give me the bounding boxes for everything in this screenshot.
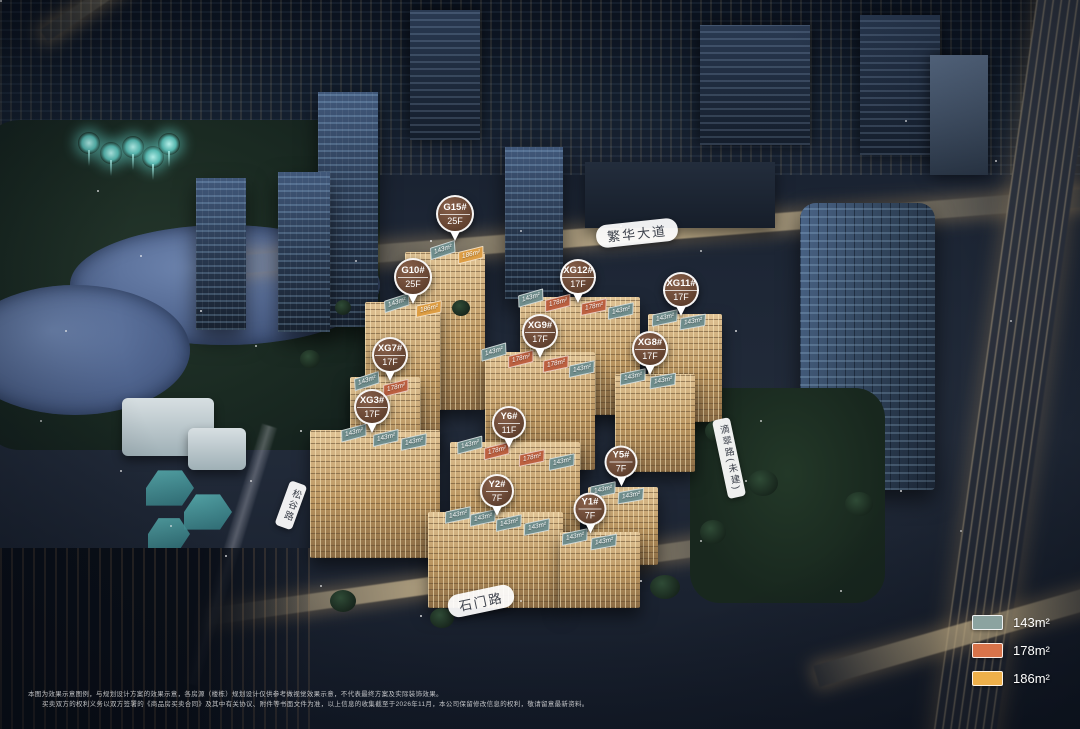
marker-building-id: XG3# bbox=[357, 395, 387, 408]
building-marker-xg7[interactable]: XG7#17F bbox=[372, 337, 408, 381]
legend-row-143m: 143m² bbox=[972, 615, 1050, 630]
area-tag-143: 143m² bbox=[401, 433, 427, 451]
marker-pointer bbox=[585, 524, 595, 534]
building-marker-xg3[interactable]: XG3#17F bbox=[354, 389, 390, 433]
marker-building-id: XG7# bbox=[375, 343, 405, 356]
building-marker-y1[interactable]: Y1#7F bbox=[574, 493, 607, 534]
building-marker-xg8[interactable]: XG8#17F bbox=[632, 331, 668, 375]
legend-swatch bbox=[972, 671, 1003, 686]
marker-pointer bbox=[408, 294, 418, 304]
legend-row-186m: 186m² bbox=[972, 671, 1050, 686]
area-tag-143: 143m² bbox=[618, 488, 645, 505]
marker-floor-count: 7F bbox=[616, 463, 627, 475]
marker-circle: G10#25F bbox=[394, 258, 432, 296]
marker-circle: XG7#17F bbox=[372, 337, 408, 373]
marker-pointer bbox=[676, 306, 686, 316]
disclaimer-text: 本图为效果示意图例，与规划设计方案的效果示意，各房源（楼栋）规划设计仅供参考做视… bbox=[28, 690, 589, 710]
disclaimer-line-2: 买卖双方的权利义务以双方签署的《商品房买卖合同》及其中有关协议、附件等书面文件为… bbox=[28, 700, 589, 710]
marker-floor-count: 17F bbox=[673, 291, 689, 303]
building-marker-y5[interactable]: Y5#7F bbox=[605, 446, 638, 487]
marker-pointer bbox=[367, 423, 377, 433]
area-tag-143: 143m² bbox=[496, 514, 522, 532]
area-tag-143: 143m² bbox=[608, 302, 634, 320]
marker-floor-count: 7F bbox=[492, 492, 503, 504]
building-marker-g10[interactable]: G10#25F bbox=[394, 258, 432, 304]
marker-circle: XG12#17F bbox=[560, 259, 596, 295]
marker-circle: Y2#7F bbox=[480, 474, 514, 508]
marker-pointer bbox=[504, 438, 514, 448]
marker-circle: XG11#17F bbox=[663, 272, 699, 308]
marker-building-id: G15# bbox=[440, 202, 469, 215]
road-label-2: 滴翠路(未建) bbox=[712, 417, 746, 499]
road-label-1: 石门路 bbox=[446, 583, 516, 619]
marker-building-id: XG8# bbox=[635, 337, 665, 350]
legend-label: 178m² bbox=[1013, 643, 1050, 658]
marker-pointer bbox=[535, 348, 545, 358]
building-marker-xg9[interactable]: XG9#17F bbox=[522, 314, 558, 358]
area-legend: 143m²178m²186m² bbox=[972, 615, 1050, 699]
road-label-3: 松谷路 bbox=[275, 480, 308, 530]
marker-floor-count: 7F bbox=[585, 510, 596, 522]
marker-floor-count: 25F bbox=[447, 215, 463, 227]
area-tag-143: 143m² bbox=[591, 534, 618, 551]
marker-floor-count: 17F bbox=[382, 356, 398, 368]
disclaimer-line-1: 本图为效果示意图例，与规划设计方案的效果示意，各房源（楼栋）规划设计仅供参考做视… bbox=[28, 690, 589, 700]
area-tag-143: 143m² bbox=[524, 518, 550, 536]
marker-building-id: G10# bbox=[398, 265, 427, 278]
marker-building-id: XG9# bbox=[525, 320, 555, 333]
marker-circle: Y1#7F bbox=[574, 493, 607, 526]
area-tag-178: 178m² bbox=[519, 449, 545, 467]
marker-building-id: Y5# bbox=[610, 450, 633, 463]
area-tag-143: 143m² bbox=[549, 453, 575, 471]
area-tag-186: 186m² bbox=[458, 246, 484, 265]
building-marker-y6[interactable]: Y6#11F bbox=[492, 406, 526, 448]
marker-building-id: XG12# bbox=[560, 265, 596, 278]
area-tag-143: 143m² bbox=[457, 435, 483, 454]
marker-floor-count: 17F bbox=[570, 278, 586, 290]
area-tag-143: 143m² bbox=[430, 240, 456, 261]
marker-floor-count: 17F bbox=[642, 350, 658, 362]
marker-pointer bbox=[492, 506, 502, 516]
building-marker-xg12[interactable]: XG12#17F bbox=[560, 259, 596, 303]
marker-circle: XG3#17F bbox=[354, 389, 390, 425]
marker-pointer bbox=[450, 231, 460, 241]
area-tag-143: 143m² bbox=[518, 288, 544, 308]
building-marker-g15[interactable]: G15#25F bbox=[436, 195, 474, 241]
marker-circle: Y5#7F bbox=[605, 446, 638, 479]
legend-label: 143m² bbox=[1013, 615, 1050, 630]
legend-label: 186m² bbox=[1013, 671, 1050, 686]
marker-circle: G15#25F bbox=[436, 195, 474, 233]
annotation-layer: 143m²186m²143m²186m²143m²178m²178m²143m²… bbox=[0, 0, 1080, 729]
marker-floor-count: 25F bbox=[405, 278, 421, 290]
marker-pointer bbox=[385, 371, 395, 381]
marker-building-id: XG11# bbox=[663, 278, 698, 291]
aerial-site-plan: 143m²186m²143m²186m²143m²178m²178m²143m²… bbox=[0, 0, 1080, 729]
marker-circle: XG9#17F bbox=[522, 314, 558, 350]
marker-building-id: Y2# bbox=[486, 479, 509, 492]
marker-pointer bbox=[573, 293, 583, 303]
building-marker-xg11[interactable]: XG11#17F bbox=[663, 272, 699, 316]
area-tag-143: 143m² bbox=[481, 342, 507, 362]
marker-pointer bbox=[645, 365, 655, 375]
marker-building-id: Y6# bbox=[498, 411, 521, 424]
marker-pointer bbox=[616, 477, 626, 487]
building-marker-y2[interactable]: Y2#7F bbox=[480, 474, 514, 516]
marker-floor-count: 11F bbox=[502, 424, 517, 436]
area-tag-143: 143m² bbox=[680, 314, 707, 331]
road-label-0: 繁华大道 bbox=[595, 217, 679, 248]
legend-swatch bbox=[972, 615, 1003, 630]
area-tag-143: 143m² bbox=[445, 506, 471, 524]
marker-circle: Y6#11F bbox=[492, 406, 526, 440]
marker-circle: XG8#17F bbox=[632, 331, 668, 367]
legend-swatch bbox=[972, 643, 1003, 658]
marker-floor-count: 17F bbox=[364, 408, 380, 420]
area-tag-143: 143m² bbox=[569, 360, 595, 378]
legend-row-178m: 178m² bbox=[972, 643, 1050, 658]
marker-floor-count: 17F bbox=[532, 333, 548, 345]
area-tag-143: 143m² bbox=[650, 373, 677, 390]
marker-building-id: Y1# bbox=[579, 497, 602, 510]
